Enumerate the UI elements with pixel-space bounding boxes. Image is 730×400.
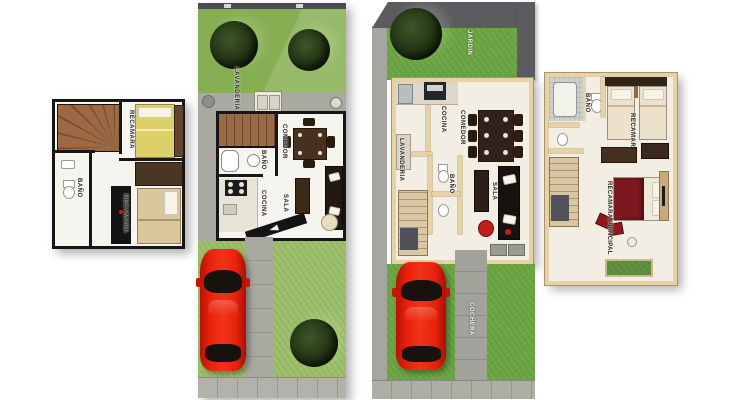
plate (484, 117, 489, 122)
fridge (398, 84, 413, 104)
chair (327, 136, 335, 148)
nightstand (634, 86, 638, 98)
red-pillow (505, 229, 511, 235)
laundry-sink (254, 91, 282, 113)
closet (135, 162, 183, 186)
bed-tan (137, 188, 181, 244)
pouf (627, 237, 637, 247)
side-walkway (372, 26, 387, 398)
wall-post (224, 4, 231, 8)
chair (514, 130, 523, 142)
plate (318, 133, 322, 137)
wall (119, 158, 182, 161)
pillow (164, 191, 178, 215)
bathtub (553, 82, 577, 117)
sink (61, 160, 75, 169)
pillow (611, 89, 632, 100)
room-label-bath: BAÑO (75, 178, 82, 198)
entry-arrow-icon (269, 225, 279, 233)
bed-twin (639, 86, 667, 140)
room-label-dining: COMEDOR (280, 124, 287, 159)
car-mirror (245, 278, 250, 287)
maroon-blanket (614, 178, 644, 220)
wall (432, 192, 460, 196)
chair (468, 130, 477, 142)
wall-post (296, 4, 303, 8)
wall (275, 114, 278, 176)
ground-floor-lot-right: JARDIN COCINA (372, 2, 535, 398)
headboard-wall (605, 77, 667, 86)
room-label-kitchen: COCINA (439, 106, 446, 133)
tree-icon (288, 29, 330, 71)
wall (219, 174, 263, 177)
plate (484, 150, 489, 155)
red-car (396, 262, 446, 370)
house-ground-floor: COCINA COMEDOR LAVANDERIA (392, 78, 533, 264)
wall (549, 149, 583, 153)
toilet (557, 133, 568, 146)
stove (225, 180, 247, 196)
burner (239, 189, 244, 194)
plate (484, 133, 489, 138)
tree-icon (390, 8, 442, 60)
area-label-laundry: LAVANDERIA (232, 67, 239, 110)
sink (438, 204, 449, 217)
wall (89, 150, 92, 246)
room-label-living: SALA (281, 194, 288, 212)
blanket-fold (640, 105, 666, 107)
wall (119, 102, 122, 154)
pillow (643, 89, 664, 100)
stove (424, 82, 446, 100)
dresser (659, 171, 669, 221)
closet (641, 143, 669, 159)
closet (601, 147, 637, 163)
car-rear-window (402, 346, 441, 362)
stairs (57, 104, 121, 152)
room-label-bedroom-bottom: RECAMARA (121, 194, 128, 233)
cushion (502, 214, 516, 225)
entry-mat (490, 244, 507, 256)
sofa (498, 166, 520, 240)
room-label-laundry: LAVANDERIA (397, 138, 404, 181)
toilet (63, 186, 75, 199)
floor-plan-sheet: RECAMARA BAÑO RECAMARA (0, 0, 730, 400)
coffee-table (474, 170, 489, 212)
burner (228, 189, 233, 194)
plate (503, 133, 508, 138)
coffee-table (295, 178, 310, 214)
car-windshield (401, 280, 442, 301)
area-label-carport: COCHERA (467, 302, 474, 336)
car-mirror (196, 278, 201, 287)
basin (269, 95, 280, 110)
closet (174, 105, 184, 157)
area-label-garden: JARDIN (465, 30, 472, 55)
wall (549, 123, 579, 127)
room-label-bedroom-top: RECAMARA (127, 110, 134, 149)
car-windshield (204, 270, 242, 293)
basin (257, 95, 268, 110)
red-car (200, 249, 246, 371)
ground-floor-lot-left: LAVANDERIA BAÑO COMEDOR (198, 3, 346, 397)
chair (468, 146, 477, 158)
cushion (502, 174, 517, 186)
chair (303, 118, 315, 126)
entry-mat (508, 244, 525, 256)
plate (318, 151, 322, 155)
sidewalk (198, 377, 346, 398)
cushion (328, 172, 341, 182)
plate (298, 151, 302, 155)
tree-icon (210, 21, 258, 69)
chair (468, 114, 477, 126)
blanket-fold (138, 219, 180, 221)
room-label-living: SALA (490, 182, 497, 200)
boiler (202, 95, 215, 108)
stove-panel (427, 85, 443, 91)
chair (514, 114, 523, 126)
bathtub (221, 150, 239, 172)
window-planter (605, 259, 653, 277)
plate (503, 150, 508, 155)
red-armchair (478, 220, 494, 237)
chair (303, 160, 315, 168)
stairwell-void (551, 195, 569, 221)
plate (298, 133, 302, 137)
shower-room (549, 77, 586, 121)
burner (239, 182, 244, 187)
dining-table (293, 128, 327, 160)
kitchen-counter (396, 82, 458, 105)
room-label-master-bedroom: RECAMARA PRINCIPAL (597, 181, 612, 255)
room-label-bath: BAÑO (259, 150, 266, 170)
sidewalk (372, 380, 535, 399)
room-label-kitchen: COCINA (259, 190, 266, 217)
dining-table (478, 110, 514, 162)
pillow (138, 107, 172, 118)
burner (228, 182, 233, 187)
drain-cover (330, 97, 342, 109)
chair (514, 146, 523, 158)
car-hood-highlight (405, 307, 437, 331)
car-mirror (392, 288, 397, 297)
car-mirror (445, 288, 450, 297)
car-hood-highlight (208, 300, 237, 327)
round-table (321, 214, 338, 231)
driveway-path (245, 237, 273, 377)
car-rear-window (205, 344, 241, 362)
upper-floor-plan-right: BAÑO RECAMARA RECAMARA PRINC (545, 73, 677, 285)
house-ground-floor: BAÑO COMEDOR (216, 111, 346, 241)
blanket-fold (608, 105, 634, 107)
plate (503, 117, 508, 122)
room-label-dining: COMEDOR (458, 110, 465, 145)
room-label-bath: BAÑO (447, 174, 454, 194)
stairs (219, 114, 275, 148)
kitchen-sink (223, 204, 237, 215)
blanket-fold (136, 129, 174, 131)
tv (662, 186, 665, 206)
room-label-bath: BAÑO (583, 93, 590, 113)
wall (426, 106, 430, 156)
kitchen-counter (219, 178, 258, 232)
perimeter-wall-right (517, 2, 535, 80)
bed-yellow (135, 104, 175, 158)
stairwell-void (400, 228, 418, 250)
upper-floor-plan-left: RECAMARA BAÑO RECAMARA (52, 99, 185, 249)
tree-icon (290, 319, 338, 367)
